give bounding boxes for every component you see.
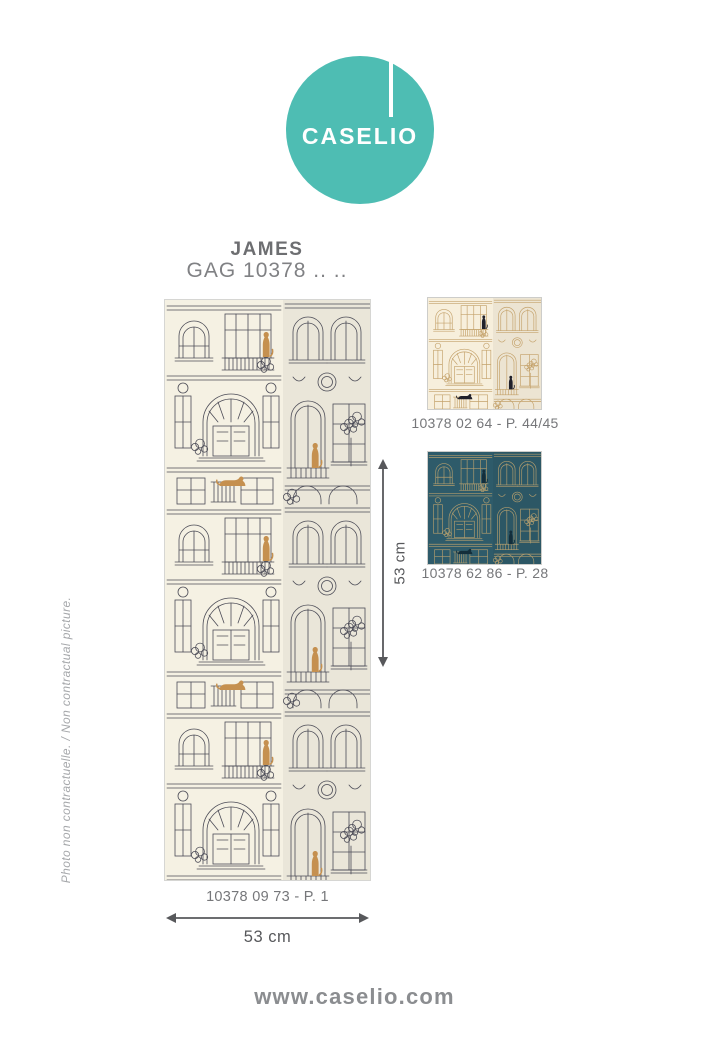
logo-accent-bar-icon [389, 59, 393, 117]
colorway-swatch-cream [428, 298, 541, 409]
website-url: www.caselio.com [0, 984, 709, 1010]
colorway-swatch-teal [428, 452, 541, 564]
product-reference: GAG 10378 .. .. [117, 259, 417, 283]
product-sheet: CASELIO JAMES GAG 10378 .. .. 53 cm 1037… [0, 0, 709, 1063]
width-dimension-arrow-icon [166, 911, 369, 925]
disclaimer-note: Photo non contractuelle. / Non contractu… [59, 597, 73, 884]
main-wallpaper-panel [165, 300, 370, 880]
caselio-logo: CASELIO [286, 56, 434, 204]
caselio-logo-text: CASELIO [302, 111, 418, 150]
width-dimension-label: 53 cm [165, 928, 370, 947]
colorway-caption-cream: 10378 02 64 - P. 44/45 [398, 415, 572, 431]
height-dimension-arrow-icon [376, 459, 390, 667]
colorway-caption-teal: 10378 62 86 - P. 28 [398, 565, 572, 581]
product-name: JAMES [167, 239, 367, 261]
main-panel-reference: 10378 09 73 - P. 1 [145, 889, 390, 905]
